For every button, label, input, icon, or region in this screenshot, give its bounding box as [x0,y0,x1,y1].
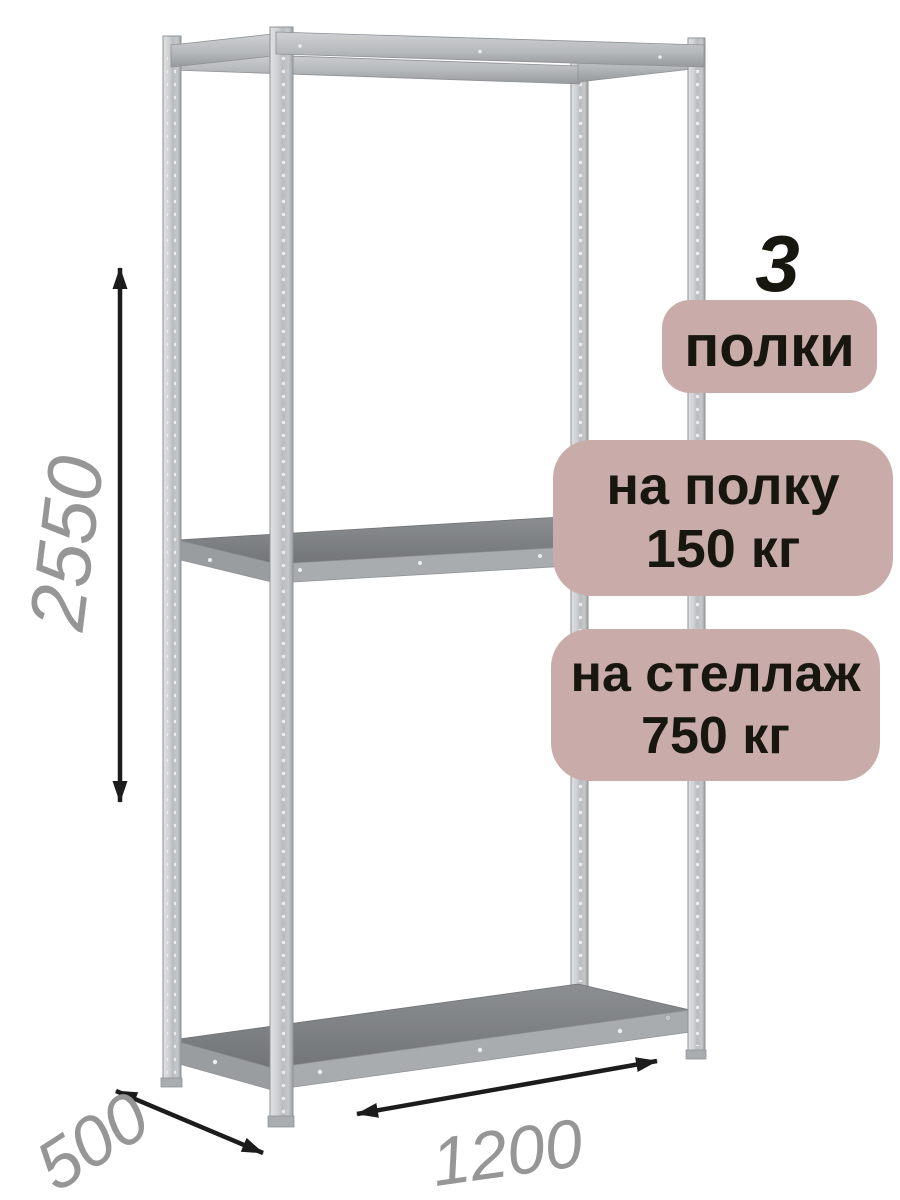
shelving-rack-illustration: 2550 500 1200 [0,0,900,1200]
rack-post-front-left [270,27,293,1126]
rack-load-badge: на стеллаж 750 кг [551,629,880,781]
height-dimension-label: 2550 [12,452,121,636]
rack-load-line2: 750 кг [641,705,790,767]
product-image: 2550 500 1200 3 полки на полку 150 кг на… [0,0,900,1200]
shelf-count-badge: полки [662,300,877,393]
rack-load-line1: на стеллаж [571,643,861,705]
shelf-load-line2: 150 кг [646,518,801,581]
rack-shelf-bottom [172,984,690,1090]
shelf-count-label: полки [684,313,855,380]
depth-dimension-label: 500 [22,1077,162,1200]
shelf-load-line1: на полку [606,455,839,518]
shelf-load-badge: на полку 150 кг [553,440,893,596]
shelf-count-number: 3 [725,218,830,310]
width-dimension-label: 1200 [427,1105,588,1200]
rack-post-back-left [163,36,181,1086]
